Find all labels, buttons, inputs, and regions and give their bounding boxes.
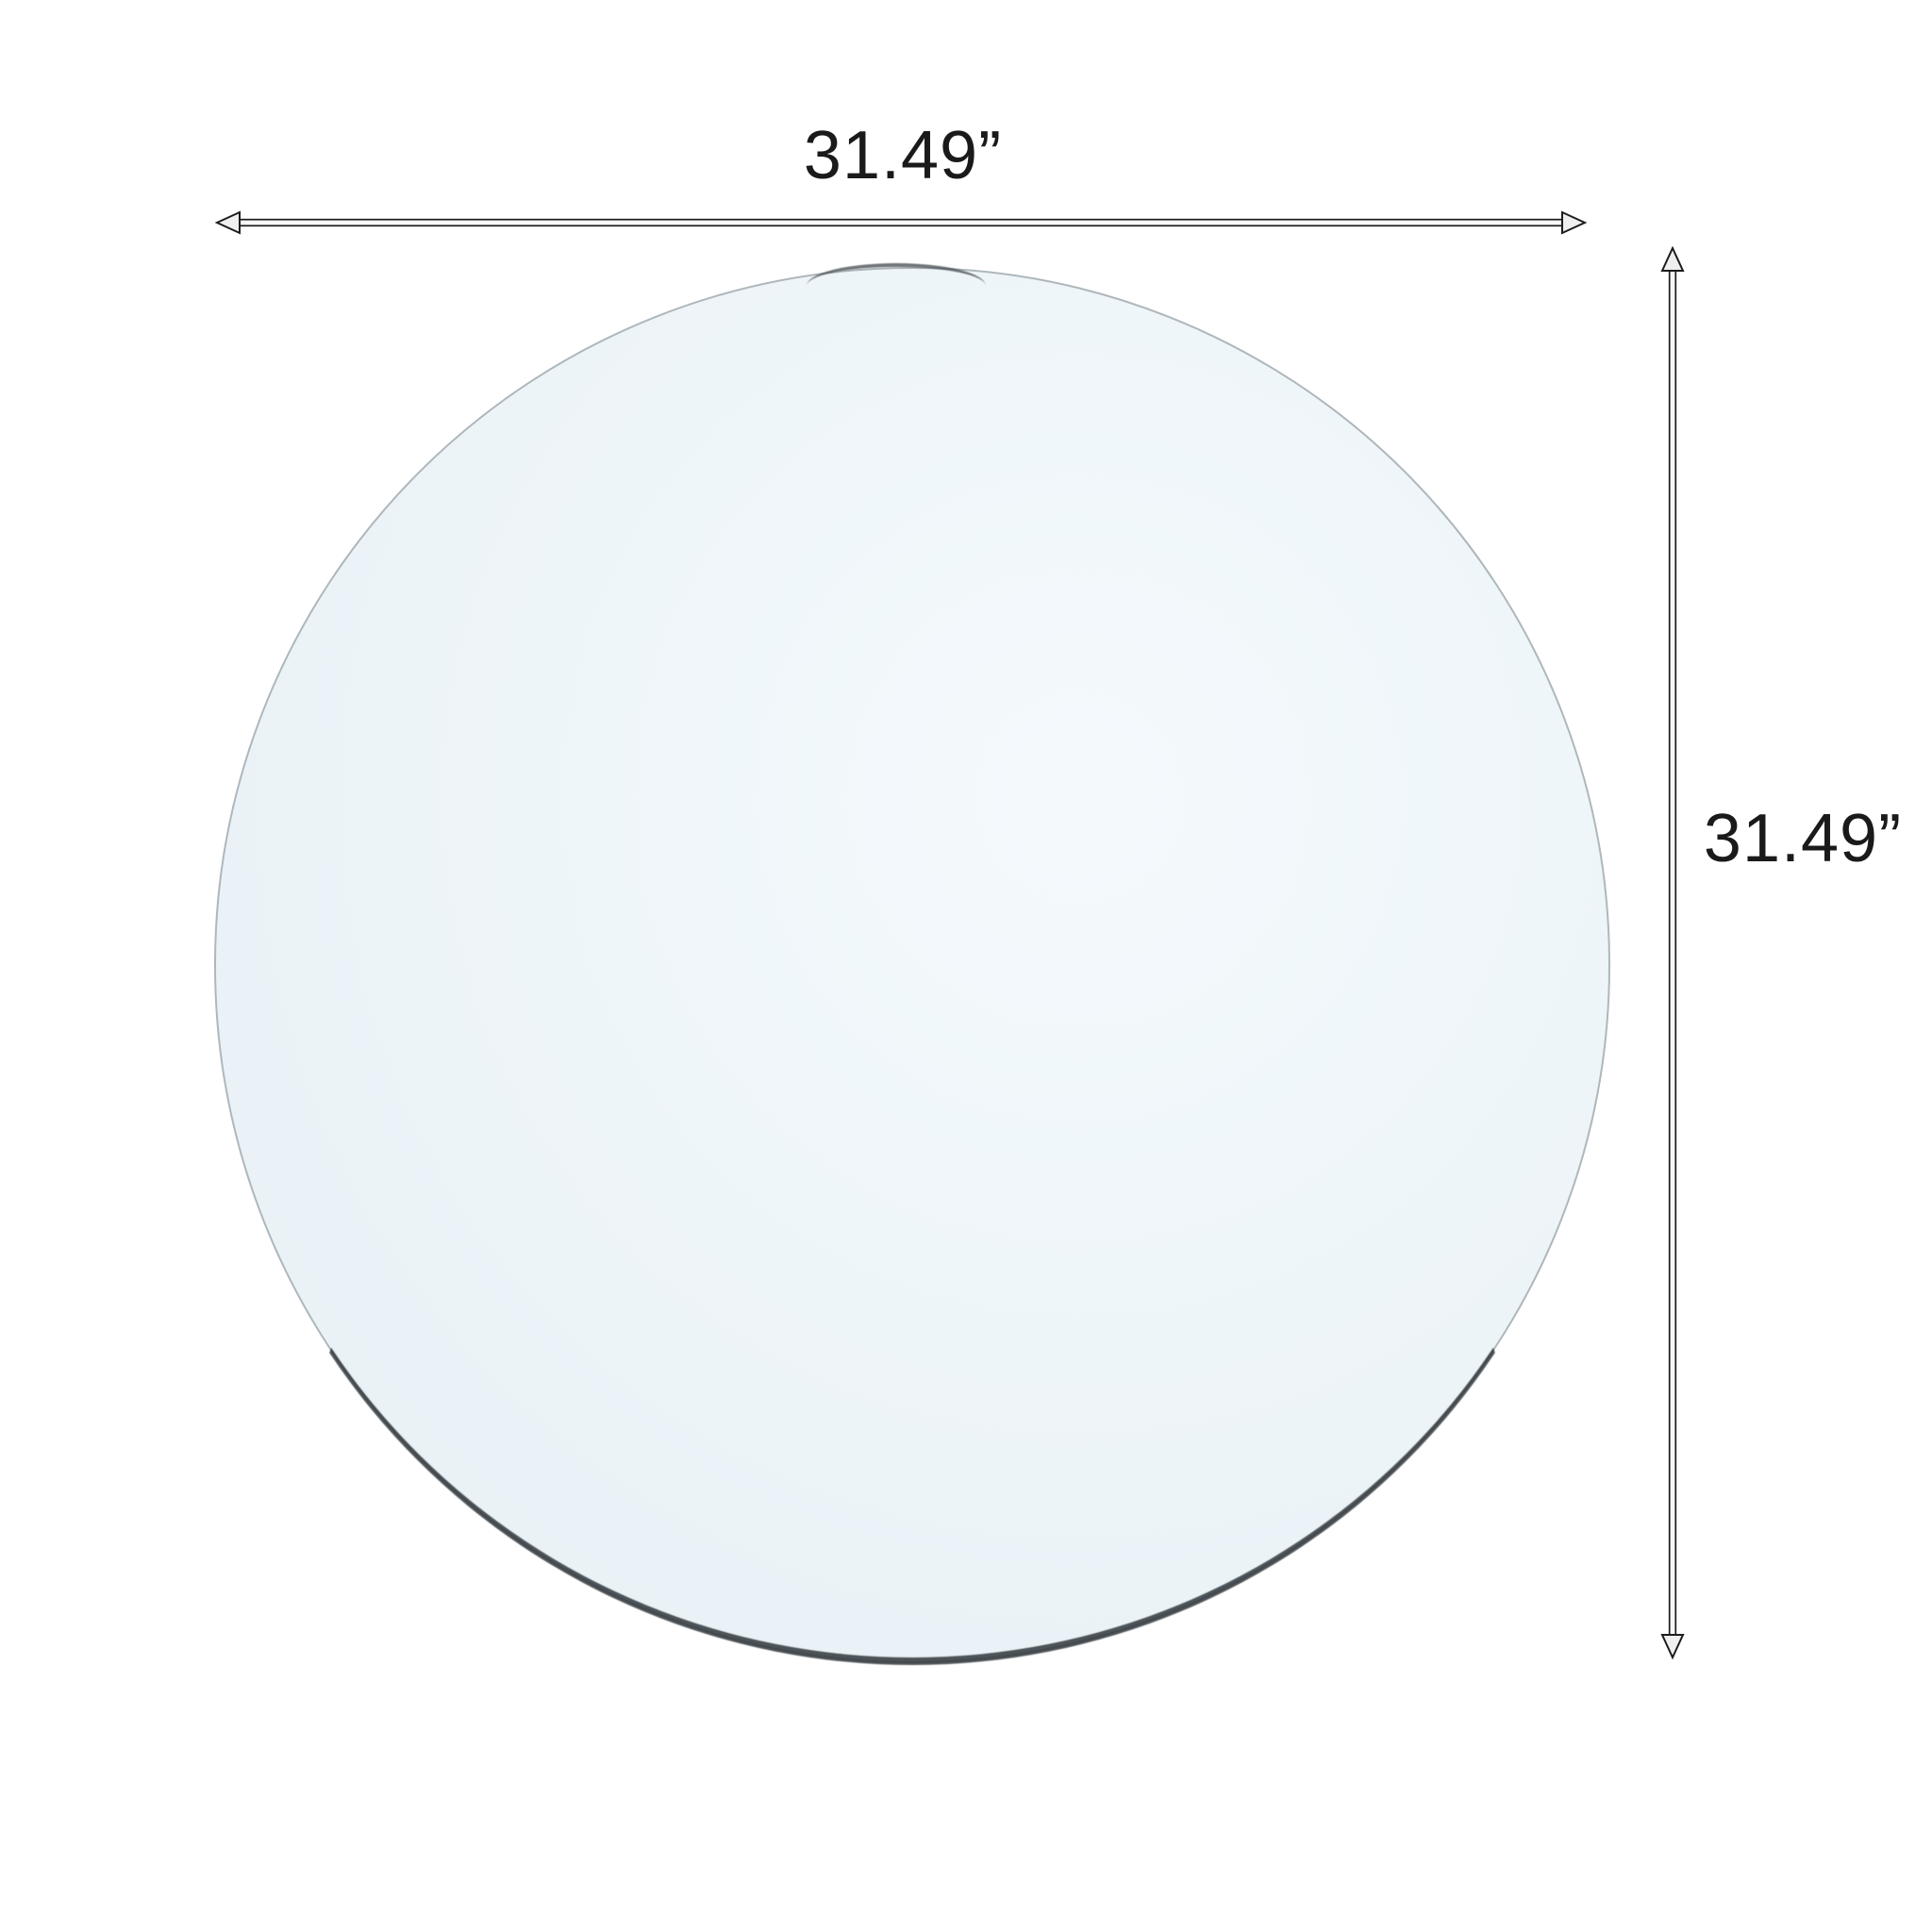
glass-circle (214, 267, 1610, 1663)
width-arrow-shaft (237, 220, 1565, 226)
arrowhead-left-icon (217, 212, 240, 233)
arrowhead-down-icon (1662, 1635, 1683, 1657)
height-dimension-label: 31.49” (1704, 802, 1902, 876)
width-dimension-arrow (214, 200, 1588, 245)
glass-edge-accent (807, 263, 986, 308)
dimension-diagram: 31.49” 31.49” (0, 0, 1932, 1932)
arrowhead-right-icon (1562, 212, 1585, 233)
width-dimension-label: 31.49” (804, 119, 1002, 193)
height-dimension-arrow (1650, 245, 1695, 1660)
arrowhead-up-icon (1662, 248, 1683, 271)
height-arrow-shaft (1670, 268, 1676, 1638)
